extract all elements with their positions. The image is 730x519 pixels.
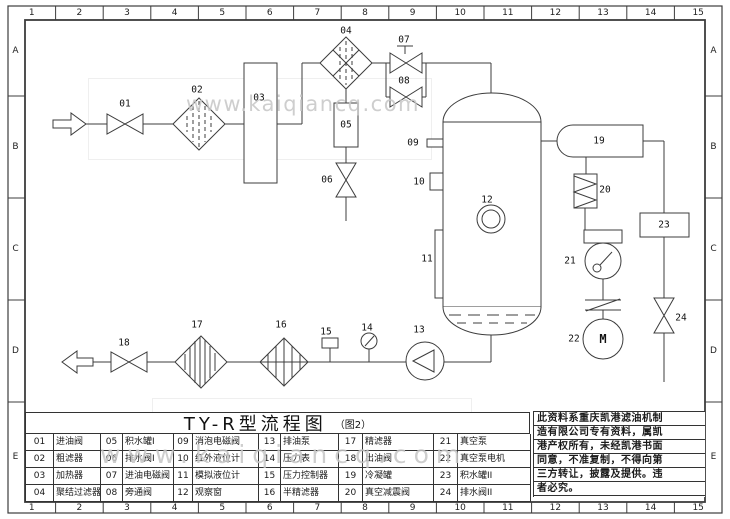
copyright-note-line: 港产权所有，未经凯港书面 — [534, 440, 705, 454]
grid-col-number: 15 — [692, 503, 703, 513]
component-label-13: 13 — [413, 325, 424, 336]
copyright-note-line: 此资料系重庆凯港滤油机制 — [534, 412, 705, 426]
grid-col-number: 14 — [645, 8, 656, 18]
grid-col-number: 11 — [502, 503, 513, 513]
grid-col-number: 10 — [454, 8, 465, 18]
grid-col-number: 9 — [410, 8, 416, 18]
part-number-cell: 12 — [174, 485, 193, 502]
part-name-cell: 真空减震阀 — [363, 485, 434, 502]
part-name-cell: 真空泵 — [458, 434, 531, 451]
defoam-solenoid-09 — [427, 139, 443, 147]
part-name-cell: 半精滤器 — [281, 485, 339, 502]
grid-col-number: 2 — [77, 8, 83, 18]
part-name-cell: 聚结过滤器 — [54, 485, 101, 502]
part-name-cell: 粗滤器 — [54, 451, 101, 468]
drawing-sheet: TY-R型流程图 （图2） 01进油阀05积水罐I09消泡电磁阀13排油泵17精… — [0, 0, 730, 519]
part-name-cell: 真空泵电机 — [458, 451, 531, 468]
coupling — [585, 299, 621, 311]
grid-row-letter: E — [13, 452, 19, 462]
page-title-suffix: （图2） — [335, 416, 371, 431]
semi-fine-filter-16 — [260, 338, 308, 386]
component-label-22: 22 — [568, 334, 579, 345]
grid-col-number: 13 — [597, 8, 608, 18]
grid-col-number: 9 — [410, 503, 416, 513]
part-name-cell: 积水罐II — [458, 468, 531, 485]
component-label-09: 09 — [407, 138, 418, 149]
grid-row-letter: A — [710, 46, 716, 56]
grid-col-number: 4 — [172, 8, 178, 18]
part-number-cell: 04 — [26, 485, 54, 502]
part-number-cell: 03 — [26, 468, 54, 485]
component-label-04: 04 — [340, 26, 351, 37]
part-number-cell: 23 — [434, 468, 458, 485]
part-name-cell: 加热器 — [54, 468, 101, 485]
grid-col-number: 7 — [315, 8, 321, 18]
copyright-note-line: 三方转让，披露及提供。违 — [534, 468, 705, 482]
part-name-cell: 压力控制器 — [281, 468, 339, 485]
grid-col-number: 4 — [172, 503, 178, 513]
watermark-text: www.kaiqiancq.com — [186, 92, 420, 116]
grid-col-number: 2 — [77, 503, 83, 513]
part-name-cell: 进油电磁阀 — [123, 468, 174, 485]
grid-col-number: 14 — [645, 503, 656, 513]
grid-row-letter: E — [711, 452, 717, 462]
oil-pump-13 — [406, 342, 444, 380]
ir-level-sensor-10 — [430, 173, 443, 190]
component-label-21: 21 — [564, 256, 575, 267]
part-number-cell: 19 — [339, 468, 363, 485]
copyright-notes: 此资料系重庆凯港滤油机制造有限公司专有资料，属凯港产权所有，未经凯港书面同意，不… — [533, 411, 705, 497]
grid-row-letter: B — [12, 142, 18, 152]
grid-col-number: 5 — [219, 8, 225, 18]
outlet-valve-18 — [111, 352, 147, 372]
part-number-cell: 16 — [259, 485, 281, 502]
part-number-cell: 07 — [101, 468, 123, 485]
damper-20 — [574, 174, 597, 208]
grid-col-number: 6 — [267, 8, 273, 18]
sight-glass-12 — [477, 205, 505, 233]
copyright-note-line: 同意，不准复制，不得向第 — [534, 454, 705, 468]
component-label-08: 08 — [398, 76, 409, 87]
part-name-cell: 进油阀 — [54, 434, 101, 451]
watermark-text: www.kaiqiancq.com — [100, 440, 467, 469]
component-label-01: 01 — [119, 99, 130, 110]
drawing-title-row: TY-R型流程图 （图2） — [26, 413, 529, 434]
valve-01 — [107, 114, 143, 134]
component-label-05: 05 — [340, 120, 351, 131]
part-number-cell: 15 — [259, 468, 281, 485]
component-label-15: 15 — [320, 327, 331, 338]
level-gauge-11 — [435, 230, 443, 298]
grid-row-letter: D — [710, 346, 717, 356]
grid-row-letter: C — [12, 244, 18, 254]
part-number-cell: 02 — [26, 451, 54, 468]
component-label-23: 23 — [658, 220, 669, 231]
coalescer-04 — [320, 37, 372, 89]
part-number-cell: 20 — [339, 485, 363, 502]
fine-filter-17 — [175, 336, 227, 388]
component-label-06: 06 — [321, 175, 332, 186]
grid-col-number: 13 — [597, 503, 608, 513]
grid-row-letter: A — [12, 46, 18, 56]
component-label-07: 07 — [398, 35, 409, 46]
component-label-19: 19 — [593, 136, 604, 147]
grid-col-number: 12 — [550, 8, 561, 18]
grid-col-number: 3 — [124, 503, 130, 513]
part-number-cell: 01 — [26, 434, 54, 451]
component-label-10: 10 — [413, 177, 424, 188]
copyright-note-line: 造有限公司专有资料，属凯 — [534, 426, 705, 440]
pressure-gauge-14 — [361, 333, 377, 349]
grid-col-number: 6 — [267, 503, 273, 513]
component-label-16: 16 — [275, 320, 286, 331]
part-number-cell: 08 — [101, 485, 123, 502]
drain-valve-06 — [336, 163, 356, 197]
grid-col-number: 8 — [362, 8, 368, 18]
part-number-cell: 24 — [434, 485, 458, 502]
grid-col-number: 1 — [29, 503, 35, 513]
part-name-cell: 冷凝罐 — [363, 468, 434, 485]
copyright-note-line: 者必究。 — [534, 482, 705, 496]
motor-letter: M — [599, 332, 606, 346]
grid-row-letter: B — [710, 142, 716, 152]
part-number-cell: 11 — [174, 468, 193, 485]
grid-col-number: 15 — [692, 8, 703, 18]
part-name-cell: 模拟液位计 — [193, 468, 259, 485]
component-label-24: 24 — [675, 313, 686, 324]
grid-col-number: 10 — [454, 503, 465, 513]
part-name-cell: 排水阀II — [458, 485, 531, 502]
inlet-arrow — [53, 113, 86, 135]
component-label-12: 12 — [481, 195, 492, 206]
grid-row-letter: C — [710, 244, 716, 254]
grid-col-number: 7 — [315, 503, 321, 513]
drain-valve-24 — [654, 298, 674, 333]
grid-col-number: 1 — [29, 8, 35, 18]
part-name-cell: 观察窗 — [193, 485, 259, 502]
component-label-20: 20 — [599, 185, 610, 196]
component-label-17: 17 — [191, 320, 202, 331]
grid-col-number: 5 — [219, 503, 225, 513]
pressure-controller-15 — [322, 338, 338, 348]
component-label-14: 14 — [361, 323, 372, 334]
component-label-18: 18 — [118, 338, 129, 349]
vacuum-pump-21 — [584, 230, 622, 279]
part-name-cell: 旁通阀 — [123, 485, 174, 502]
heater-03 — [244, 63, 277, 183]
grid-col-number: 12 — [550, 503, 561, 513]
grid-col-number: 11 — [502, 8, 513, 18]
component-label-11: 11 — [421, 254, 432, 265]
grid-row-letter: D — [12, 346, 19, 356]
grid-col-number: 8 — [362, 503, 368, 513]
outlet-arrow — [62, 351, 93, 373]
page-title: TY-R型流程图 — [184, 410, 327, 436]
inlet-solenoid-07 — [390, 53, 422, 73]
grid-col-number: 3 — [124, 8, 130, 18]
